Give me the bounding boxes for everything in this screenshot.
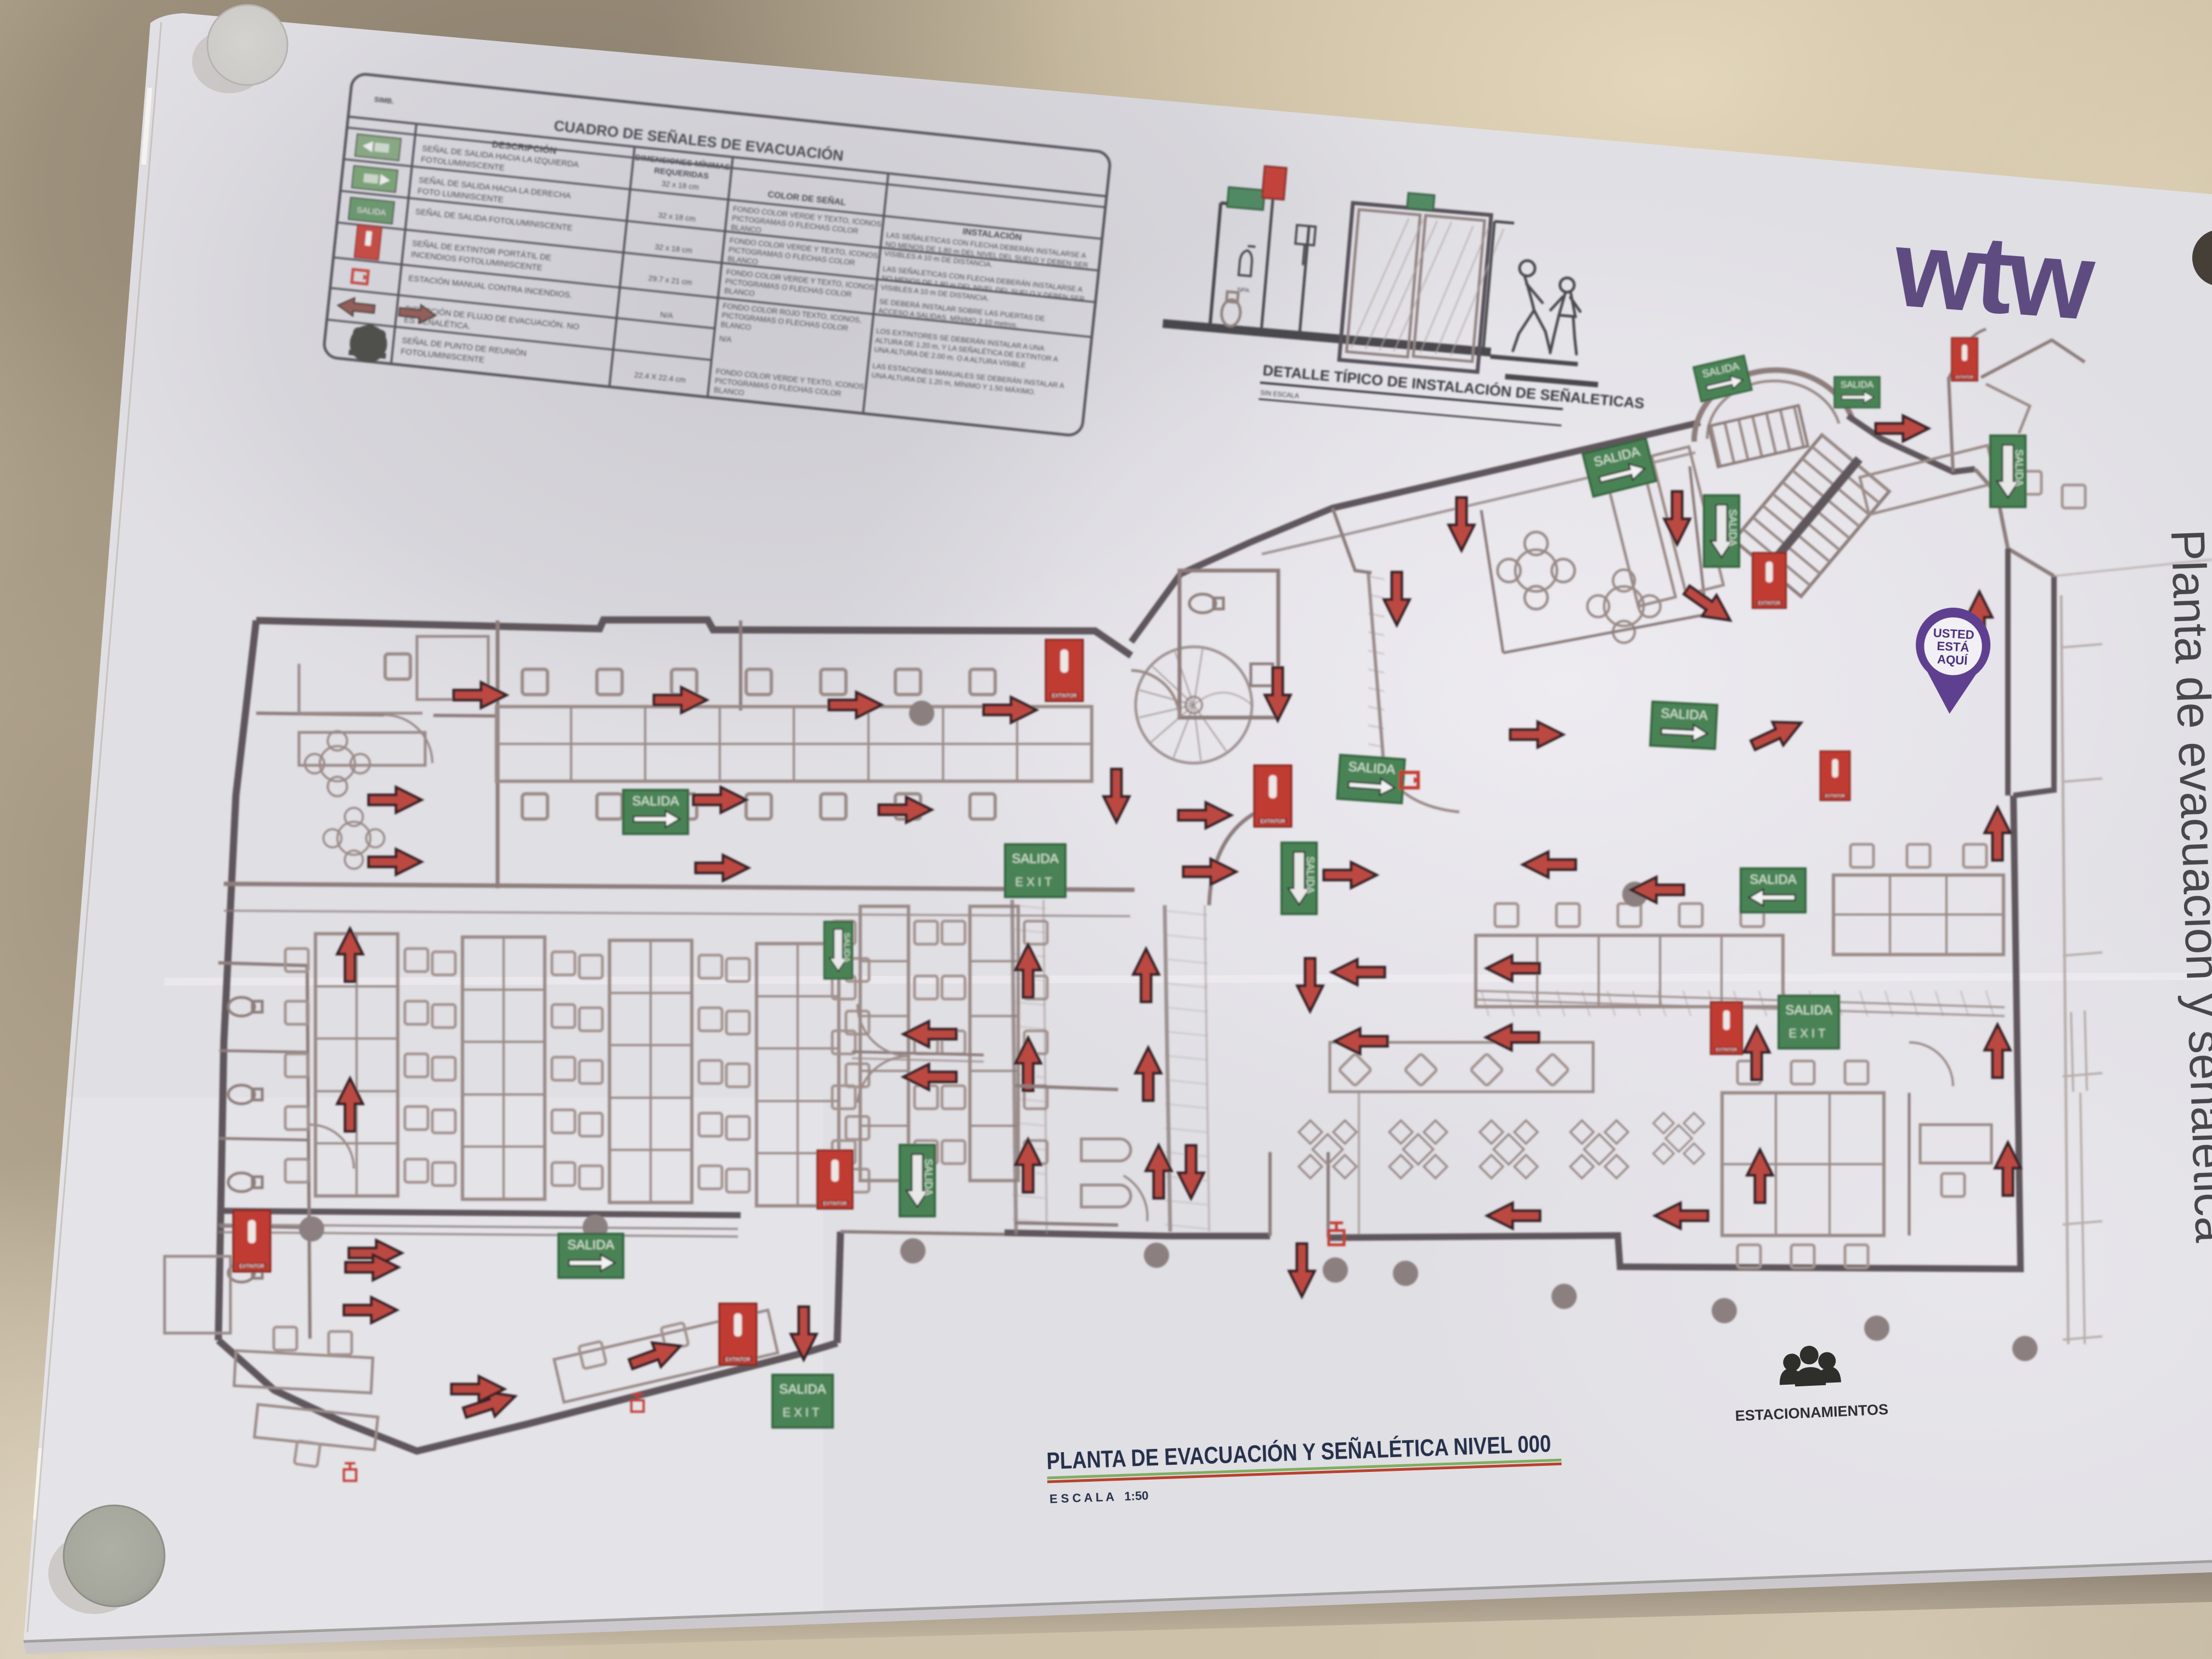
svg-text:AQUÍ: AQUÍ — [1937, 652, 1968, 668]
svg-text:N/A: N/A — [660, 310, 674, 320]
svg-text:N/A: N/A — [719, 335, 732, 344]
svg-text:NPA: NPA — [1237, 286, 1250, 294]
svg-text:wtw: wtw — [1890, 206, 2099, 343]
